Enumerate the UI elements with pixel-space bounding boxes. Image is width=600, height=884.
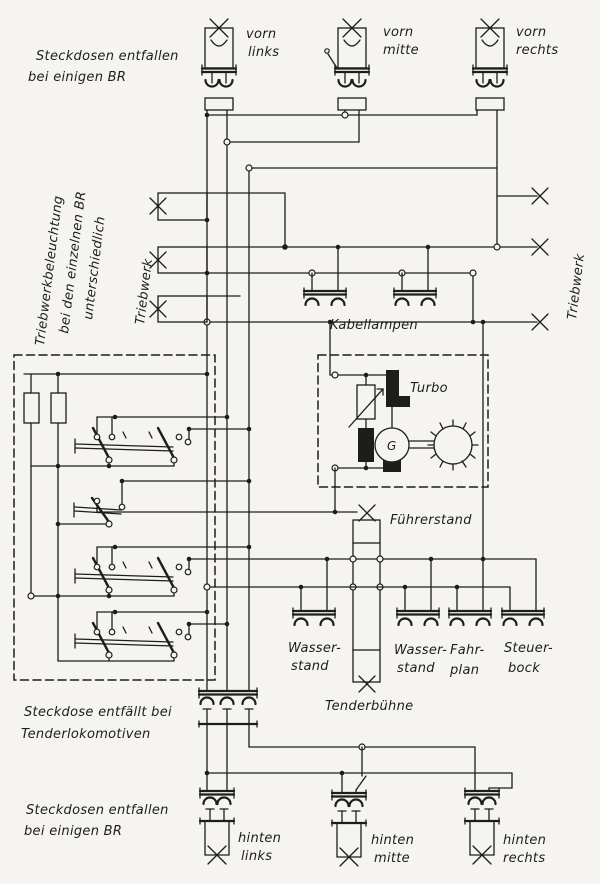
lamp-hinten-links-icon [200,788,234,864]
label-wasserstand1-line1: Wasser- [288,641,341,656]
label-turbo: Turbo [410,381,448,396]
brush-gear-icon [386,396,410,407]
wasserstand-socket-icon [293,608,335,625]
label-vorn-links-line1: vorn [246,27,276,42]
label-vorn-mitte-line2: mitte [383,43,419,58]
triebwerk-right-lamps [532,188,548,330]
fuehrerstand-lamp-icon [359,505,375,521]
light-switch-icon [75,610,191,661]
turbo-box [318,322,488,514]
tender-plug-socket-icon [199,688,257,727]
label-fuehrerstand: Führerstand [390,513,472,528]
lamp-vorn-mitte-icon [335,19,369,110]
label-hinten-mitte-line2: mitte [374,851,410,866]
label-vorn-mitte-line1: vorn [383,25,413,40]
triebwerk-note-line3: unterschiedlich [81,215,109,320]
mitte-switch-icon [325,49,337,68]
label-tenderbuehne: Tenderbühne [325,699,413,714]
label-vorn-links-line2: links [248,45,279,60]
wiring-diagram: Steckdosen entfallen bei einigen BR vorn… [0,0,600,884]
triebwerk-left-lamps [150,193,207,322]
resistor-icon [358,428,374,462]
note-top-left-line2: bei einigen BR [28,70,126,85]
label-fahrplan-line2: plan [449,663,479,678]
lamp-vorn-links-icon [202,19,236,110]
fuse-icon [51,393,66,423]
brush-gear-icon [386,370,399,400]
label-hinten-rechts-line2: rechts [503,851,545,866]
label-generator: G [387,439,397,453]
lamp-hinten-mitte-icon [332,790,366,866]
label-fahrplan-line1: Fahr- [450,643,485,658]
label-wasserstand2-line1: Wasser- [394,643,447,658]
note-bottom-left-line1: Steckdosen entfallen [26,803,169,818]
note-tender-line1: Steckdose entfällt bei [24,705,172,720]
label-wasserstand1-line2: stand [291,659,329,674]
schematic-page: Steckdosen entfallen bei einigen BR vorn… [0,0,600,884]
label-steuerbock-line2: bock [508,661,540,676]
note-bottom-left-line2: bei einigen BR [24,824,122,839]
light-switch-icon [75,415,191,466]
cab-sockets [204,557,544,625]
label-wasserstand2-line2: stand [397,661,435,676]
label-hinten-links-line2: links [241,849,272,864]
wasserstand-socket-icon [397,608,439,625]
cable-lamp-socket-icon [304,288,346,305]
label-vorn-rechts-line2: rechts [516,43,558,58]
label-kabellampen: Kabellampen [330,318,418,333]
lamp-vorn-rechts-icon [473,19,507,110]
label-hinten-rechts-line1: hinten [503,833,546,848]
fahrplan-socket-icon [449,608,491,625]
rear-switch-blade-icon [356,776,366,790]
fuehrerstand-column [350,505,383,692]
light-switch-icon [75,545,191,596]
fuse-icon [24,393,39,423]
label-triebwerk-right: Triebwerk [565,253,588,321]
note-tender-line2: Tenderlokomotiven [21,727,151,742]
label-hinten-mitte-line1: hinten [371,833,414,848]
light-switch-small-icon [74,479,125,527]
lamp-hinten-rechts-icon [465,788,499,864]
label-triebwerk-left: Triebwerk [133,258,156,326]
label-vorn-rechts-line1: vorn [516,25,546,40]
turbine-wheel-icon [428,420,478,470]
cable-lamp-socket-icon [394,288,436,305]
tenderbuehne-lamp-icon [359,676,375,692]
note-top-left-line1: Steckdosen entfallen [36,49,179,64]
kabellampen-sockets [304,247,436,305]
label-hinten-links-line1: hinten [238,831,281,846]
steuerbock-socket-icon [502,608,544,625]
label-steuerbock-line1: Steuer- [504,641,553,656]
